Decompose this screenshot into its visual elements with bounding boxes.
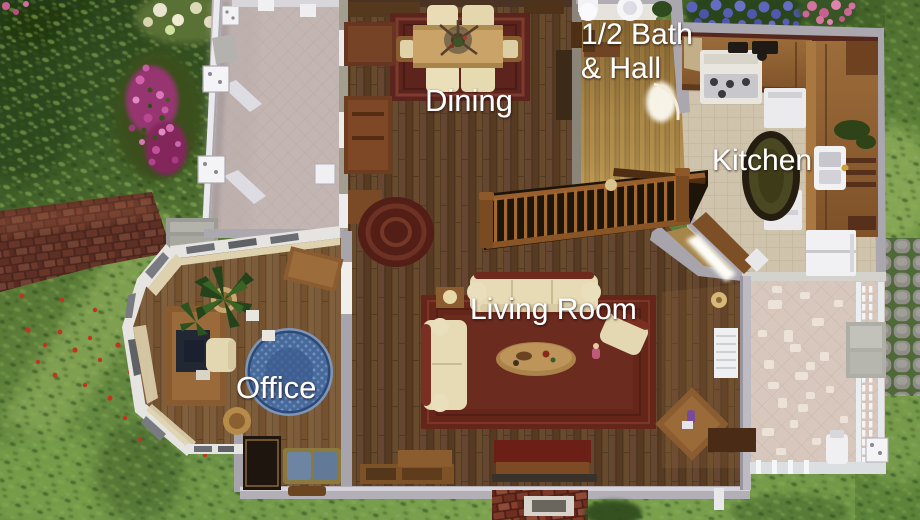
svg-text:Kitchen: Kitchen: [712, 144, 812, 177]
svg-text:Dining: Dining: [425, 83, 513, 118]
svg-text:Living Room: Living Room: [470, 293, 637, 326]
svg-text:& Hall: & Hall: [581, 52, 661, 85]
svg-text:1/2 Bath: 1/2 Bath: [581, 18, 693, 51]
svg-text:Office: Office: [236, 370, 316, 405]
